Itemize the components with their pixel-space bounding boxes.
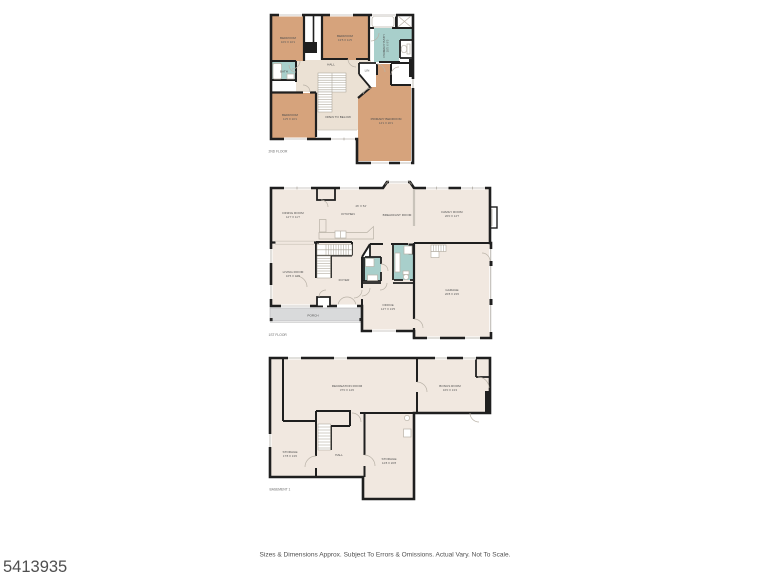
svg-text:1ST FLOOR: 1ST FLOOR [269, 333, 288, 337]
svg-text:BASEMENT 1: BASEMENT 1 [270, 487, 291, 491]
svg-text:5413935: 5413935 [3, 558, 67, 576]
svg-text:FOYER: FOYER [339, 278, 350, 282]
svg-text:11'5 X 10'1: 11'5 X 10'1 [283, 117, 297, 121]
svg-text:OPEN TO BELOW: OPEN TO BELOW [325, 115, 351, 119]
svg-text:BREAKFAST ROOM: BREAKFAST ROOM [383, 213, 412, 217]
svg-text:HALL: HALL [335, 453, 343, 457]
svg-text:16'0 X 13'4: 16'0 X 13'4 [443, 388, 458, 392]
svg-text:BATH: BATH [280, 70, 288, 74]
svg-text:17'8 X 13'0: 17'8 X 13'0 [283, 454, 298, 458]
svg-text:26' X 54': 26' X 54' [355, 204, 367, 208]
svg-text:14'7 X 13'5: 14'7 X 13'5 [381, 307, 396, 311]
svg-text:13'5 X 11'5: 13'5 X 11'5 [338, 38, 352, 42]
svg-text:16'5 X 12'5: 16'5 X 12'5 [286, 274, 301, 278]
svg-text:PORCH: PORCH [307, 314, 318, 318]
svg-text:10'5 X 9'5: 10'5 X 9'5 [386, 39, 390, 52]
svg-text:14'1 X 20'1: 14'1 X 20'1 [379, 121, 394, 125]
svg-text:12'7 X 11'7: 12'7 X 11'7 [286, 215, 300, 219]
svg-text:10'0 X 10'1: 10'0 X 10'1 [281, 40, 296, 44]
svg-text:HALL: HALL [327, 63, 335, 67]
svg-text:LIN: LIN [365, 69, 370, 73]
svg-text:20'8 X 23'0: 20'8 X 23'0 [445, 292, 460, 296]
svg-text:37'0 X 14'0: 37'0 X 14'0 [340, 388, 355, 392]
svg-text:20'0 X 14'7: 20'0 X 14'7 [445, 214, 460, 218]
svg-text:2ND FLOOR: 2ND FLOOR [269, 149, 288, 153]
svg-text:Sizes & Dimensions Approx. Sub: Sizes & Dimensions Approx. Subject To Er… [260, 552, 511, 559]
svg-text:12'8 X 20'8: 12'8 X 20'8 [382, 461, 397, 465]
svg-text:KITCHEN: KITCHEN [341, 212, 355, 216]
